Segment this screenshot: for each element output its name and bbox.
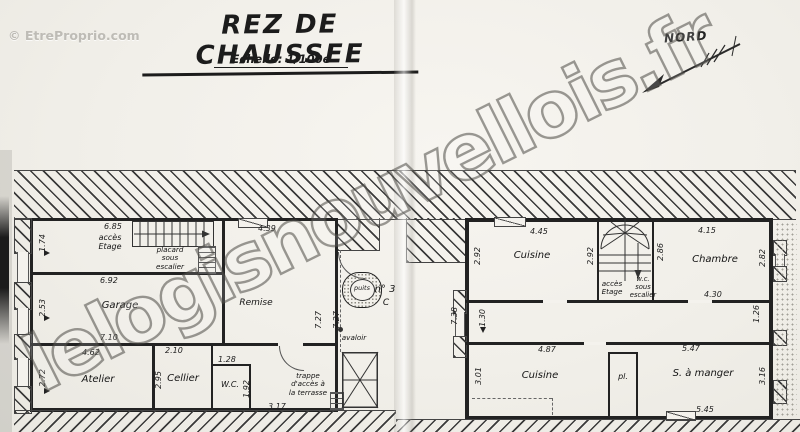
dim-hall-width: 6.85	[104, 222, 122, 232]
lb-west-pier	[14, 334, 32, 360]
room-label-cellier: Cellier	[160, 373, 206, 385]
dim-wc-height: 1.92	[242, 377, 252, 401]
lb-west-pier	[14, 282, 32, 310]
lb-west-window-1	[17, 252, 29, 282]
room-label-kitchen2: Cuisine	[510, 370, 570, 382]
lb-wall-cellier-wc	[211, 345, 213, 409]
room-label-bedroom: Chambre	[685, 254, 745, 266]
dim-kitchen2-width: 4.87	[538, 345, 556, 355]
rb-kitchen2-dashed	[472, 398, 552, 400]
dim-dining-bottom: 5.45	[696, 405, 714, 415]
room-label-atelier: Atelier	[68, 374, 128, 386]
dim-bedroom-bottom: 4.30	[704, 290, 722, 300]
room-label-acces-etage: accès Etage	[88, 233, 132, 251]
left-staircase-icon	[132, 221, 214, 247]
garden-stipple	[775, 222, 797, 416]
dim-kitchen1-height-left: 2.92	[473, 244, 483, 268]
placard-shelves	[198, 246, 216, 274]
rb-kitchen1-vent	[494, 217, 526, 227]
rb-door-gap	[584, 342, 606, 345]
dim-dining-width: 5.47	[682, 344, 700, 354]
dim-cellier-height: 2.95	[154, 368, 164, 392]
drain-label: avaloir	[336, 334, 372, 342]
floor-plan-scan: REZ DE CHAUSSEE Echelle: 1/100e NORD	[0, 0, 800, 432]
room-label-acces-etage-right: accès Etage	[597, 280, 627, 297]
lb-wall-remise-left	[222, 218, 225, 346]
rb-wall-bottom-rooms-top	[465, 342, 773, 345]
rb-wall-top-rooms-bottom	[465, 300, 773, 303]
note-trappe-terrasse: trappe d'accès à la terrasse	[282, 372, 334, 397]
terrace-stairs-cross	[342, 352, 378, 408]
room-label-kitchen1: Cuisine	[502, 250, 562, 262]
rb-door-gap	[543, 300, 567, 303]
south-wall-hatch-left	[14, 410, 396, 432]
right-staircase-icon	[599, 219, 651, 281]
hatch-block-court-left	[336, 218, 380, 251]
dim-wc-width: 1.28	[218, 355, 236, 365]
dim-garage-inner-width: 7.10	[100, 333, 118, 343]
dim-kitchen1-height-right: 2.92	[586, 244, 596, 268]
courtyard-number-line2: C	[378, 298, 394, 308]
south-wall-hatch-right	[396, 419, 800, 432]
room-label-closet: pl.	[612, 372, 634, 381]
dim-bedroom-height: 2.82	[758, 246, 768, 270]
dim-remise-height: 7.27	[314, 308, 324, 332]
room-label-remise: Remise	[228, 298, 284, 308]
dim-garage-width: 6.92	[100, 276, 118, 286]
lb-west-window-2	[17, 308, 29, 334]
door-swing-arc	[279, 346, 304, 371]
rb-wall-left	[465, 218, 469, 420]
dim-atelier-width: 4.62	[82, 348, 100, 358]
room-label-garage: Garage	[90, 300, 150, 312]
north-wall-hatch-band	[14, 170, 796, 220]
corner-watermark: © EtreProprio.com	[8, 28, 140, 43]
dim-arrow-icon	[44, 315, 50, 321]
lb-wall-hall-bottom	[30, 272, 225, 275]
dim-arrow-icon	[44, 250, 50, 256]
drain-marker	[338, 327, 343, 332]
dim-atelier-height: 2.72	[38, 366, 48, 390]
dim-rb-outer-height: 7.38	[450, 304, 460, 328]
rb-west-pier	[453, 336, 467, 358]
dim-stair-height: 2.86	[656, 240, 666, 264]
dim-kitchen2-height: 3.01	[474, 364, 484, 388]
rb-kitchen2-dashed-v	[552, 398, 554, 415]
rb-closet-wall-left	[608, 352, 610, 416]
lb-west-pier	[14, 218, 32, 254]
north-arrow-icon	[628, 36, 748, 98]
scan-edge-dark-smudge	[0, 196, 9, 344]
dim-dining-height: 3.16	[758, 364, 768, 388]
scale-note: Echelle: 1/100e	[214, 52, 348, 68]
dim-arrow-icon	[480, 327, 486, 333]
dim-remise-width: 4.39	[258, 224, 276, 234]
hatch-block-court-right	[406, 218, 467, 263]
room-label-wc-sous-escalier: w.c. sous escalier	[627, 276, 659, 299]
dim-bedroom-width: 4.15	[698, 226, 716, 236]
dim-cellier-width: 2.10	[165, 346, 183, 356]
rb-closet-wall-right	[636, 352, 638, 416]
dim-kitchen1-width: 4.45	[530, 227, 548, 237]
rb-closet-wall-top	[608, 352, 638, 354]
dim-window-right: 1.26	[752, 302, 762, 326]
dim-arrow-icon	[44, 388, 50, 394]
lb-west-window-3	[17, 358, 29, 386]
rb-door-gap	[688, 300, 712, 303]
lb-wall-garage-bottom2	[303, 343, 338, 346]
room-label-dining: S. à manger	[664, 368, 742, 380]
courtyard-number: n° 3	[370, 284, 400, 296]
room-label-placard: placard sous escalier	[146, 246, 194, 271]
